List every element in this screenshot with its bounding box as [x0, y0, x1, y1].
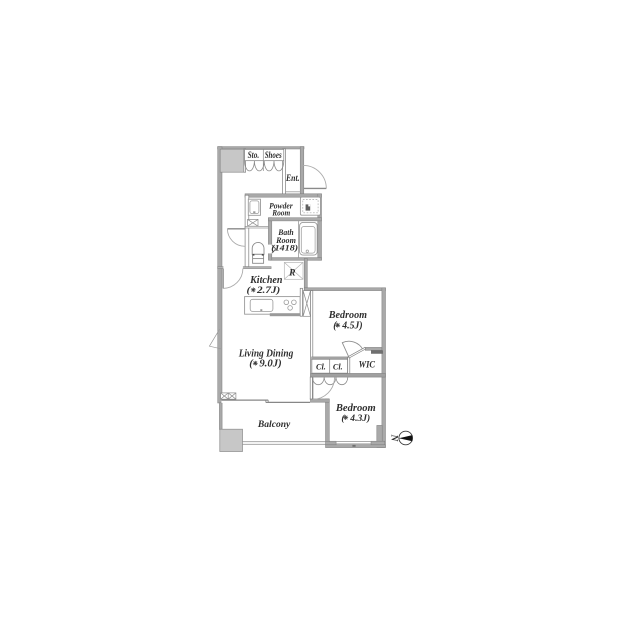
svg-text:Living Dining: Living Dining: [238, 347, 294, 359]
svg-text:Cl.: Cl.: [333, 363, 343, 372]
svg-text:N: N: [389, 434, 399, 442]
svg-text:Bedroom: Bedroom: [328, 309, 367, 321]
svg-text:Room: Room: [271, 207, 290, 217]
svg-text:Sto.: Sto.: [248, 150, 260, 160]
svg-text:Cl.: Cl.: [316, 363, 326, 372]
svg-text:Shoes: Shoes: [265, 150, 282, 160]
svg-text:Balcony: Balcony: [257, 419, 291, 430]
svg-text:(1418): (1418): [271, 242, 298, 252]
svg-text:Ent.: Ent.: [285, 173, 299, 184]
svg-text:WIC: WIC: [359, 360, 376, 370]
svg-text:( 2.7J): ( 2.7J): [247, 285, 281, 296]
svg-text:R: R: [288, 268, 296, 279]
